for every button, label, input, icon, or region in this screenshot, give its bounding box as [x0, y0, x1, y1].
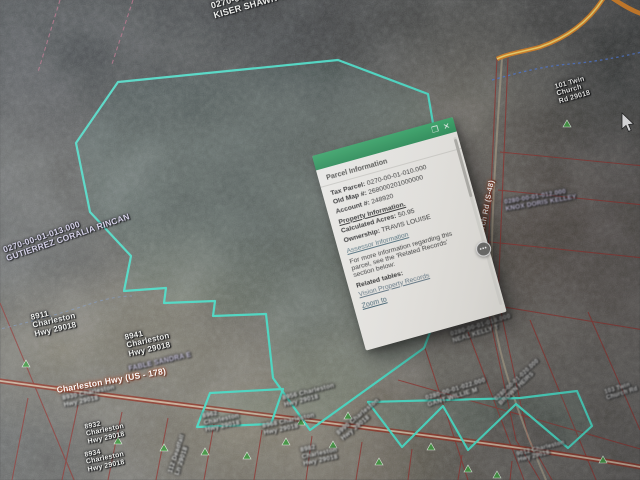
- mouse-cursor-icon: [620, 112, 636, 134]
- screen-photo: 0270-00-01-004.000KISER SHAWN CAMPBELL 0…: [0, 0, 640, 480]
- map-overlay: [0, 0, 640, 480]
- dock-icon[interactable]: ❐: [431, 125, 440, 135]
- close-icon[interactable]: ✕: [442, 122, 451, 132]
